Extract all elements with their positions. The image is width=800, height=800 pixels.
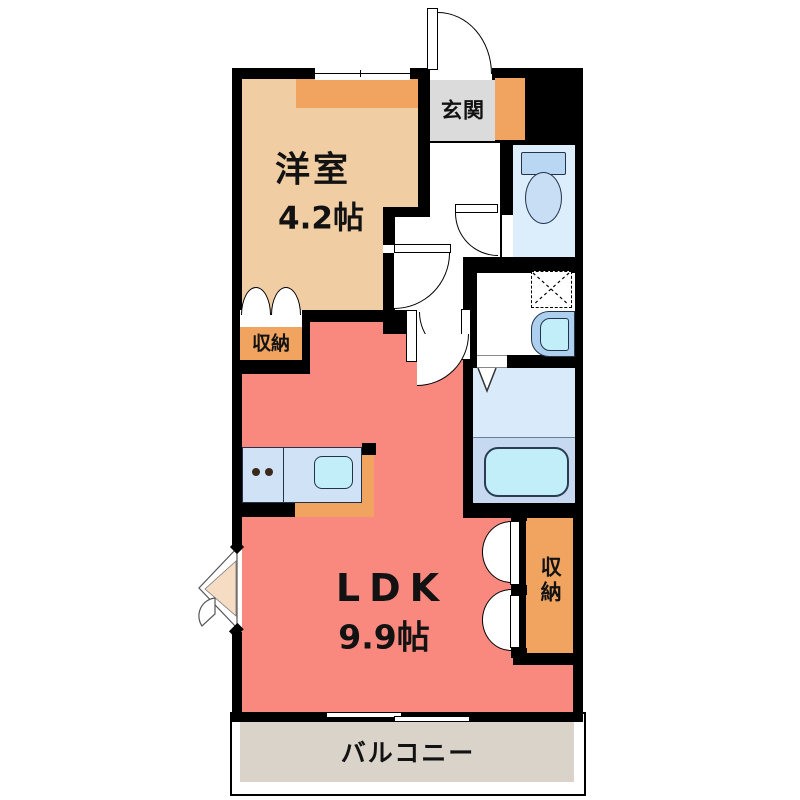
wall-storage-east-edge <box>523 515 526 653</box>
kitchen-cabinet-side <box>362 445 374 517</box>
bifold-bath-door-icon <box>476 366 498 394</box>
window-top-sliding <box>315 68 410 80</box>
storage-east-door-lower-leaf <box>510 595 520 648</box>
wall-storage-west-bottom <box>232 360 310 374</box>
kitchen-cabinet-bottom <box>295 503 362 517</box>
washbasin-bowl-icon <box>540 318 569 351</box>
wall-kitchen-stub <box>242 503 295 517</box>
bathtub-icon <box>484 447 569 497</box>
entrance-label: 玄関 <box>441 101 485 122</box>
western-room-label: 洋室 <box>275 154 351 189</box>
storage-east-door-upper-leaf <box>510 521 520 585</box>
entrance-door-leaf <box>427 8 438 70</box>
stove-burner-icon-2 <box>265 468 273 476</box>
wall-western-bottom <box>302 310 383 322</box>
window-balcony-pane-right <box>394 716 470 722</box>
kitchen-sink-icon <box>314 456 353 489</box>
washing-machine-space-icon <box>531 271 572 308</box>
window-balcony-pane-left <box>326 712 402 718</box>
balcony-label: バルコニー <box>341 741 476 766</box>
wall-jog <box>383 207 430 217</box>
toilet-bowl-icon <box>525 172 562 224</box>
western-room-closet-strip <box>296 79 418 108</box>
wall-bath-west <box>463 368 473 505</box>
wall-below-storage-east <box>513 653 573 665</box>
window-top-line <box>315 73 410 74</box>
bay-corner-door-icon <box>186 540 246 640</box>
western-door-leaf <box>394 244 451 253</box>
kitchen-counter-divider <box>283 447 284 503</box>
stove-burner-icon-1 <box>252 468 260 476</box>
wall-hall-west-upper <box>418 68 430 207</box>
shoe-cabinet <box>495 78 525 140</box>
toilet-door-opening <box>502 215 513 257</box>
entrance-door-arc <box>438 12 492 74</box>
window-top-tick <box>360 70 361 77</box>
western-room-size: 4.2帖 <box>278 204 364 235</box>
storage-west-label: 収納 <box>252 335 290 354</box>
ldk-label: LDK <box>336 569 448 607</box>
wall-corner-block <box>383 310 407 334</box>
ldk-door-leaf <box>406 310 417 362</box>
ldk-size: 9.9帖 <box>338 621 429 654</box>
wall-kitchen-post <box>362 443 376 455</box>
toilet-door-leaf <box>455 204 498 213</box>
floorplan-canvas: 玄関 洋室 4.2帖 収納 LDK 9.9帖 収納 バルコニー <box>0 0 800 800</box>
ldk-floor-bottom-right <box>513 665 573 712</box>
storage-east-label: 収納 <box>538 556 562 606</box>
